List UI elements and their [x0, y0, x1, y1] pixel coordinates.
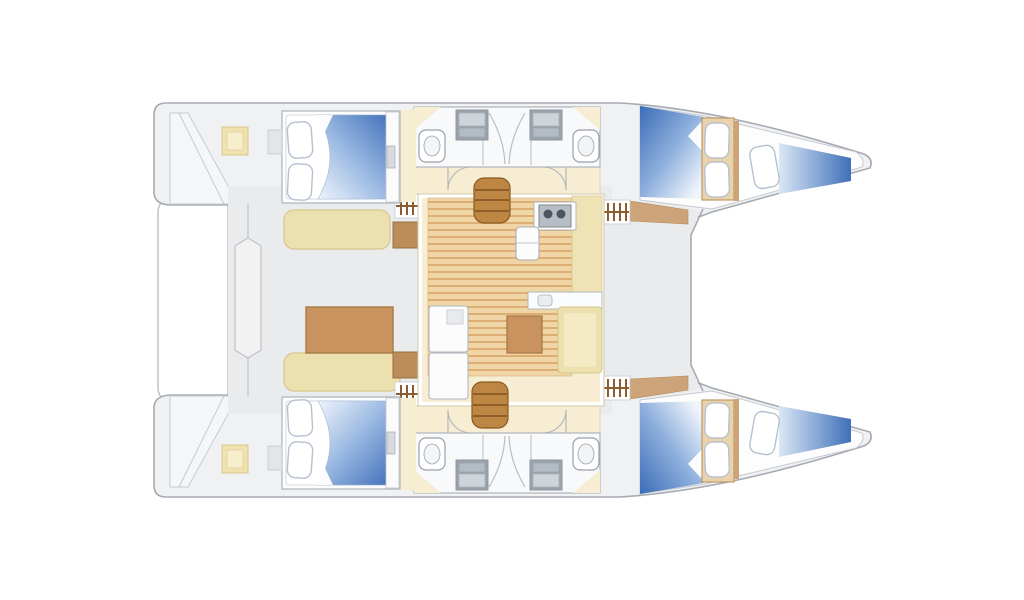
helm-seat [235, 238, 261, 358]
cockpit-bench-aft [284, 353, 400, 391]
toilet [419, 130, 445, 162]
seat-cushion [227, 132, 243, 150]
pillow [287, 399, 313, 436]
door-handle [387, 432, 395, 454]
port-bow-cabin [640, 106, 863, 209]
toilet [573, 130, 599, 162]
burner [557, 210, 566, 219]
port-staircase [474, 178, 510, 223]
bathroom-sink [530, 110, 562, 140]
pillow [704, 442, 729, 478]
pillow [704, 403, 729, 439]
salon-bench [558, 307, 602, 373]
starboard-bathrooms [414, 433, 600, 493]
door-handle [387, 146, 395, 168]
bridgedeck-front-edge [691, 209, 703, 391]
stove [534, 202, 576, 230]
bathroom-sink [530, 460, 562, 490]
salon-table [507, 316, 542, 353]
toilet [573, 438, 599, 470]
pillow [287, 163, 313, 200]
starboard-bow-cabin [640, 391, 863, 494]
starboard-staircase [472, 382, 508, 428]
duvet [318, 115, 396, 199]
pillow [704, 162, 729, 198]
seat-cushion [227, 450, 243, 468]
bulkhead [734, 121, 739, 201]
cabinet-top [447, 310, 463, 324]
pillow [287, 121, 313, 159]
duvet [318, 401, 396, 485]
bench-cushion [564, 313, 596, 367]
bathroom-sink [456, 110, 488, 140]
cockpit-table [306, 307, 393, 353]
bathroom-sink [456, 460, 488, 490]
salon-cabinets [429, 306, 468, 399]
cabinet [429, 353, 468, 399]
port-bathrooms [414, 107, 600, 167]
salon [418, 178, 604, 428]
starboard-aft-cabin [268, 397, 416, 490]
bulkhead [734, 399, 739, 479]
pillow [704, 123, 729, 159]
burner [544, 210, 553, 219]
pillow [287, 441, 313, 479]
port-corner-seat [222, 127, 248, 155]
port-aft-cabin [268, 110, 416, 203]
duvet [640, 401, 704, 494]
duvet [640, 106, 704, 199]
floorplan [0, 0, 1024, 600]
bedside-shelf [268, 130, 282, 154]
starboard-corner-seat [222, 445, 248, 473]
bedside-shelf [268, 446, 282, 470]
galley-sink [538, 295, 552, 306]
catamaran-floorplan-page [0, 0, 1024, 600]
fridge [516, 227, 539, 260]
aft-platform [158, 190, 228, 410]
toilet [419, 438, 445, 470]
cockpit-bench-fwd [284, 210, 390, 249]
